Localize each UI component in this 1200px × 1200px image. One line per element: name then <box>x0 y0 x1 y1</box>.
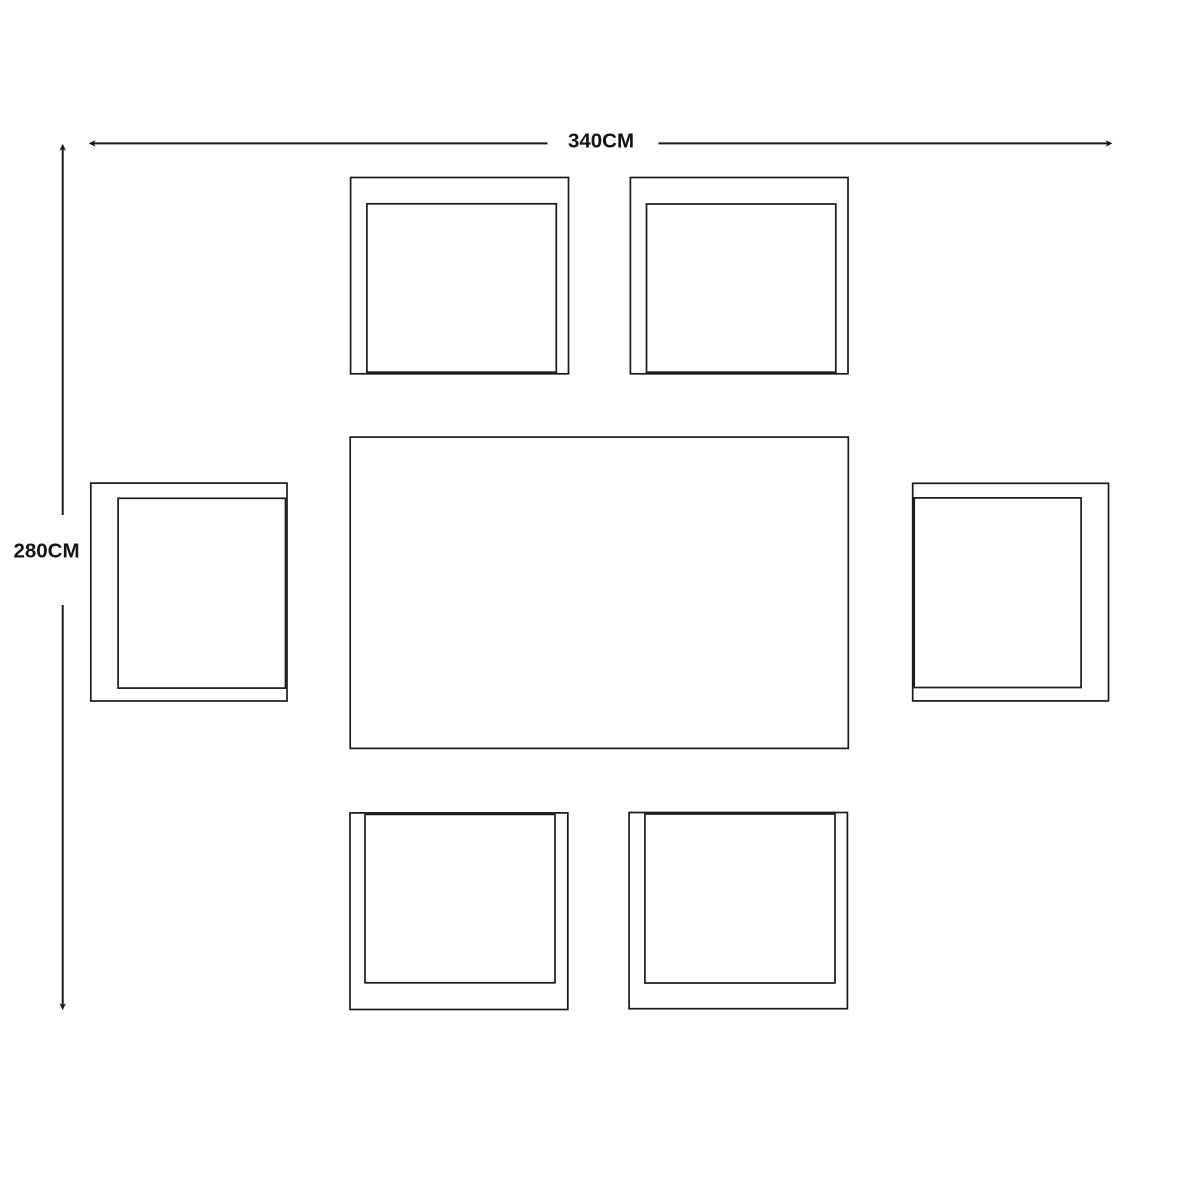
svg-text:340CM: 340CM <box>568 130 634 153</box>
svg-text:280CM: 280CM <box>13 540 79 563</box>
